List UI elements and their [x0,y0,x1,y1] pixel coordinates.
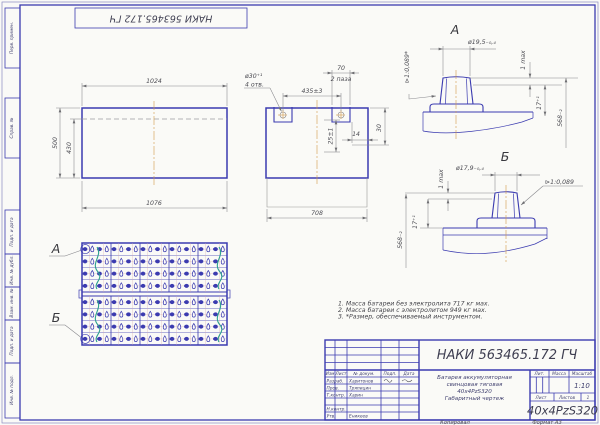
margin-label-vzam: Взам. инв. № [9,288,15,318]
row-role-utv: Утв. [327,414,336,420]
sheet-label: Лист [535,395,547,401]
detail-a-post-height: 17⁺¹ [536,96,543,110]
hole-quantity: 4 отв. [245,82,264,89]
row-role-nkontr: Н.контр. [327,406,346,412]
detail-b-height: 568₋₂ [397,231,404,249]
drawing-canvas: Перв. примен. Справ. № Подп. и дата Инв.… [0,0,600,425]
copied-label: Копировал [440,420,470,425]
row-name-tkontr: Харин [348,392,363,398]
lit-label: Лит. [534,371,545,377]
col-date: Дата [402,371,414,377]
callout-a-label: А [51,241,61,256]
dim-1076: 1076 [146,200,162,207]
hole-diameter: ø30⁺¹ [244,73,263,80]
signature-mark [384,380,392,383]
top-stamp-code: НАКИ 563465.172 ГЧ [109,13,212,24]
col-sign: Подп. [383,371,396,377]
margin-label-inv-podl: Инв. № подл. [9,375,15,405]
top-view: А Б [49,241,230,345]
front-view: 1024 1076 500 430 [52,78,227,212]
margin-label-inv-dubl: Инв. № дубл. [9,255,15,284]
dim-435: 435±3 [302,88,323,95]
title-block: Изм Лист № докум. Подп. Дата Разраб. Хар… [325,340,598,420]
drawing-sheet: Перв. примен. Справ. № Подп. и дата Инв.… [0,0,600,425]
bottom-margin: Копировал Формат А3 [440,420,562,425]
detail-a-gap: 1 max [520,50,527,70]
detail-a-diameter: ø19,5₋₀,₄ [467,39,496,46]
dim-25: 25±1 [328,128,335,145]
margin-label-podp1: Подп. и дата [9,217,15,247]
margin-label-podp2: Подп. и дата [9,326,15,356]
dim-430: 430 [66,142,73,154]
model-code: 40x4PzS320 [527,404,598,418]
dim-30: 30 [376,124,383,132]
product-line-1: Батарея аккумуляторная [437,375,512,381]
row-name-razrab: Харитонов [348,378,374,384]
dim-14: 14 [352,131,360,138]
margin-label-sprav: Справ. № [9,117,15,138]
notes: 1. Масса батареи без электролита 717 кг … [338,300,490,321]
dim-708: 708 [311,210,323,217]
callout-b-label: Б [52,310,61,325]
dim-70: 70 [337,65,345,72]
detail-b-taper: ⊳1:0,089 [545,179,574,186]
margin-column: Перв. примен. Справ. № Подп. и дата Инв.… [5,8,20,418]
col-doc: № докум. [352,371,374,377]
detail-b: Б ø17,9₋₀,₄ ⊳1:0,089 1 max 17⁺¹ 568₋₂ [397,149,583,268]
taper-note: ⊳1:0,089* [404,51,411,83]
product-line-2: свинцовая тяговая [447,382,503,388]
product-line-4: Габаритный чертеж [445,396,504,402]
side-view: 435±3 ø30⁺¹ 4 отв. 70 2 паза 25±1 30 14 … [244,51,436,222]
detail-a: А ø19,5₋₀,₄ 1 max 17⁺¹ 568₋₂ [423,22,578,148]
detail-a-label: А [450,22,460,37]
margin-label-perv: Перв. примен. [9,22,15,54]
row-name-utv: Еникеев [349,414,368,420]
col-izm: Изм [326,371,335,377]
date-mark [402,380,412,382]
dim-1024: 1024 [146,78,162,85]
sheets-label: Листов [558,395,576,401]
row-name-prov: Тряпицин [349,385,371,391]
top-stamp: НАКИ 563465.172 ГЧ [75,8,247,28]
detail-b-gap: 1 max [438,169,445,189]
note-3: 3. *Размер, обеспечиваемый инструментом. [338,313,482,321]
format-label: Формат А3 [532,420,562,425]
detail-b-post-height: 17⁺¹ [412,215,419,229]
scale-label: Масштаб [572,371,593,377]
detail-a-height: 568₋₂ [557,109,564,127]
doc-code: НАКИ 563465.172 ГЧ [437,348,578,363]
detail-b-label: Б [501,149,510,164]
sheets-value: 1 [587,395,590,401]
col-list: Лист [335,371,347,377]
mass-label: Масса [552,371,566,377]
dim-500: 500 [52,137,59,149]
row-role-tkontr: Т.контр. [327,392,346,398]
detail-b-diameter: ø17,9₋₀,₄ [455,165,484,172]
row-role-razrab: Разраб. [327,378,344,384]
row-role-prov: Пров. [327,385,340,391]
slot-quantity: 2 паза [331,76,352,83]
scale-value: 1:10 [574,382,590,390]
product-line-3: 40х4PzS320 [457,389,492,395]
